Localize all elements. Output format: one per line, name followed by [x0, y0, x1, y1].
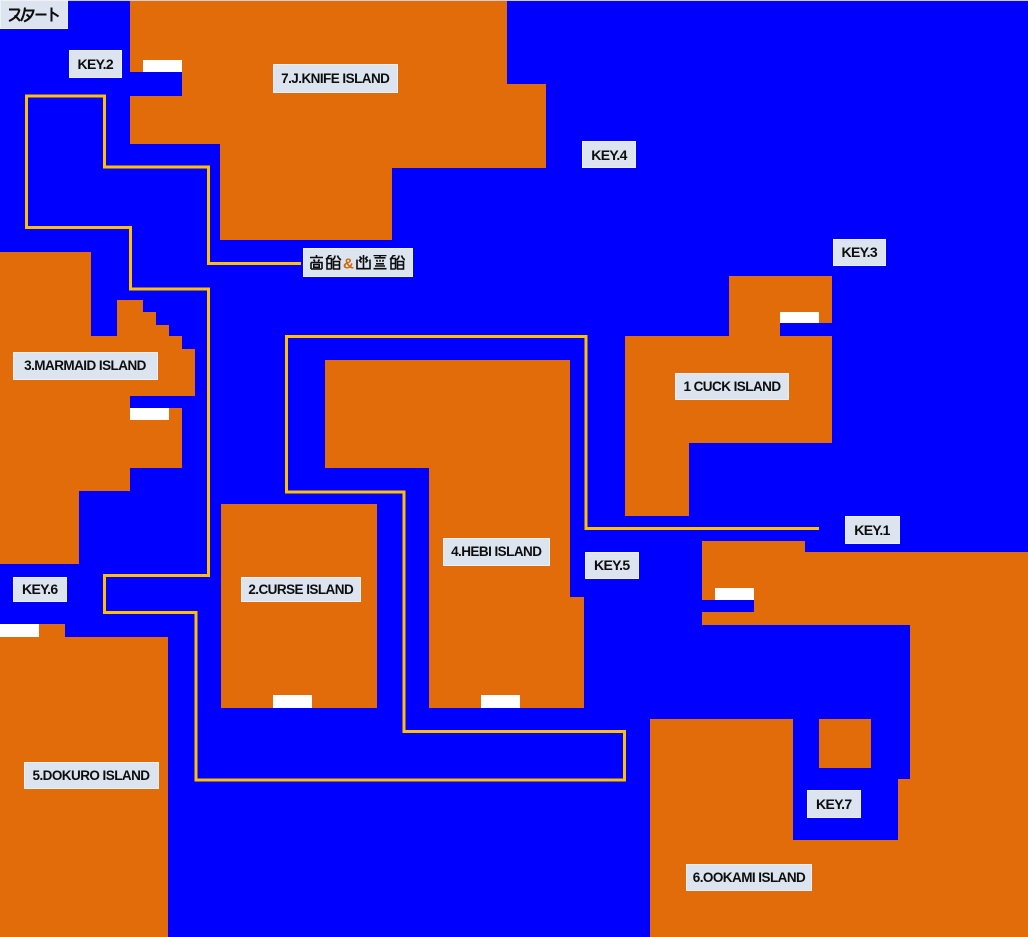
svg-text:&: &	[343, 255, 354, 270]
